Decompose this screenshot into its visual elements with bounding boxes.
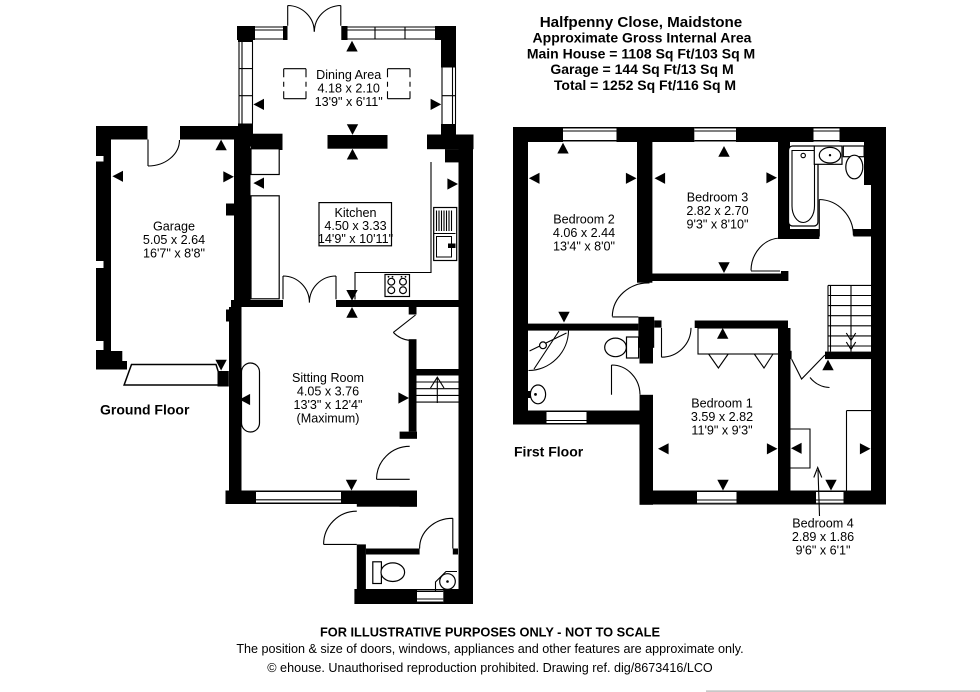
svg-text:Main House = 1108 Sq Ft/103 Sq: Main House = 1108 Sq Ft/103 Sq M (527, 45, 755, 61)
svg-text:(Maximum): (Maximum) (297, 412, 360, 426)
svg-text:Bedroom 2: Bedroom 2 (553, 213, 615, 227)
svg-text:16'7" x 8'8": 16'7" x 8'8" (143, 247, 205, 261)
svg-text:4.06 x 2.44: 4.06 x 2.44 (553, 226, 615, 240)
svg-text:9'3" x 8'10": 9'3" x 8'10" (686, 218, 748, 232)
svg-text:11'9" x 9'3": 11'9" x 9'3" (691, 424, 752, 438)
svg-text:The position & size of doors,: The position & size of doors, windows, a… (236, 642, 743, 656)
svg-text:9'6" x 6'1": 9'6" x 6'1" (795, 544, 850, 558)
svg-text:Kitchen: Kitchen (334, 206, 376, 220)
svg-text:13'3" x 12'4": 13'3" x 12'4" (293, 398, 362, 412)
svg-text:13'4" x 8'0": 13'4" x 8'0" (553, 240, 615, 254)
svg-text:First Floor: First Floor (514, 444, 584, 460)
svg-text:3.59 x 2.82: 3.59 x 2.82 (691, 410, 753, 424)
svg-text:Garage: Garage (153, 220, 195, 234)
svg-text:Total = 1252 Sq Ft/116 Sq M: Total = 1252 Sq Ft/116 Sq M (554, 77, 736, 93)
svg-text:Bedroom 3: Bedroom 3 (687, 191, 749, 205)
svg-text:Dining Area: Dining Area (316, 68, 381, 82)
svg-text:FOR ILLUSTRATIVE PURPOSES ONLY: FOR ILLUSTRATIVE PURPOSES ONLY - NOT TO … (320, 625, 661, 640)
svg-text:5.05 x 2.64: 5.05 x 2.64 (143, 233, 205, 247)
svg-text:Halfpenny Close, Maidstone: Halfpenny Close, Maidstone (540, 14, 743, 31)
svg-text:Approximate Gross Internal Are: Approximate Gross Internal Area (533, 30, 752, 46)
svg-text:Ground Floor: Ground Floor (100, 402, 190, 418)
svg-text:4.05 x 3.76: 4.05 x 3.76 (297, 385, 359, 399)
svg-text:4.50 x 3.33: 4.50 x 3.33 (324, 219, 386, 233)
svg-text:Sitting Room: Sitting Room (292, 371, 364, 385)
svg-text:13'9" x 6'11": 13'9" x 6'11" (315, 95, 383, 109)
svg-text:2.89 x 1.86: 2.89 x 1.86 (792, 530, 854, 544)
svg-text:14'9" x 10'11": 14'9" x 10'11" (318, 232, 393, 246)
svg-text:Garage = 144 Sq Ft/13 Sq M: Garage = 144 Sq Ft/13 Sq M (550, 61, 733, 77)
svg-text:© ehouse. Unauthorised reprodu: © ehouse. Unauthorised reproduction proh… (267, 661, 713, 675)
svg-text:4.18 x 2.10: 4.18 x 2.10 (318, 82, 380, 96)
svg-text:Bedroom 4: Bedroom 4 (792, 517, 854, 531)
svg-text:2.82 x 2.70: 2.82 x 2.70 (686, 204, 748, 218)
svg-text:Bedroom 1: Bedroom 1 (691, 397, 753, 411)
